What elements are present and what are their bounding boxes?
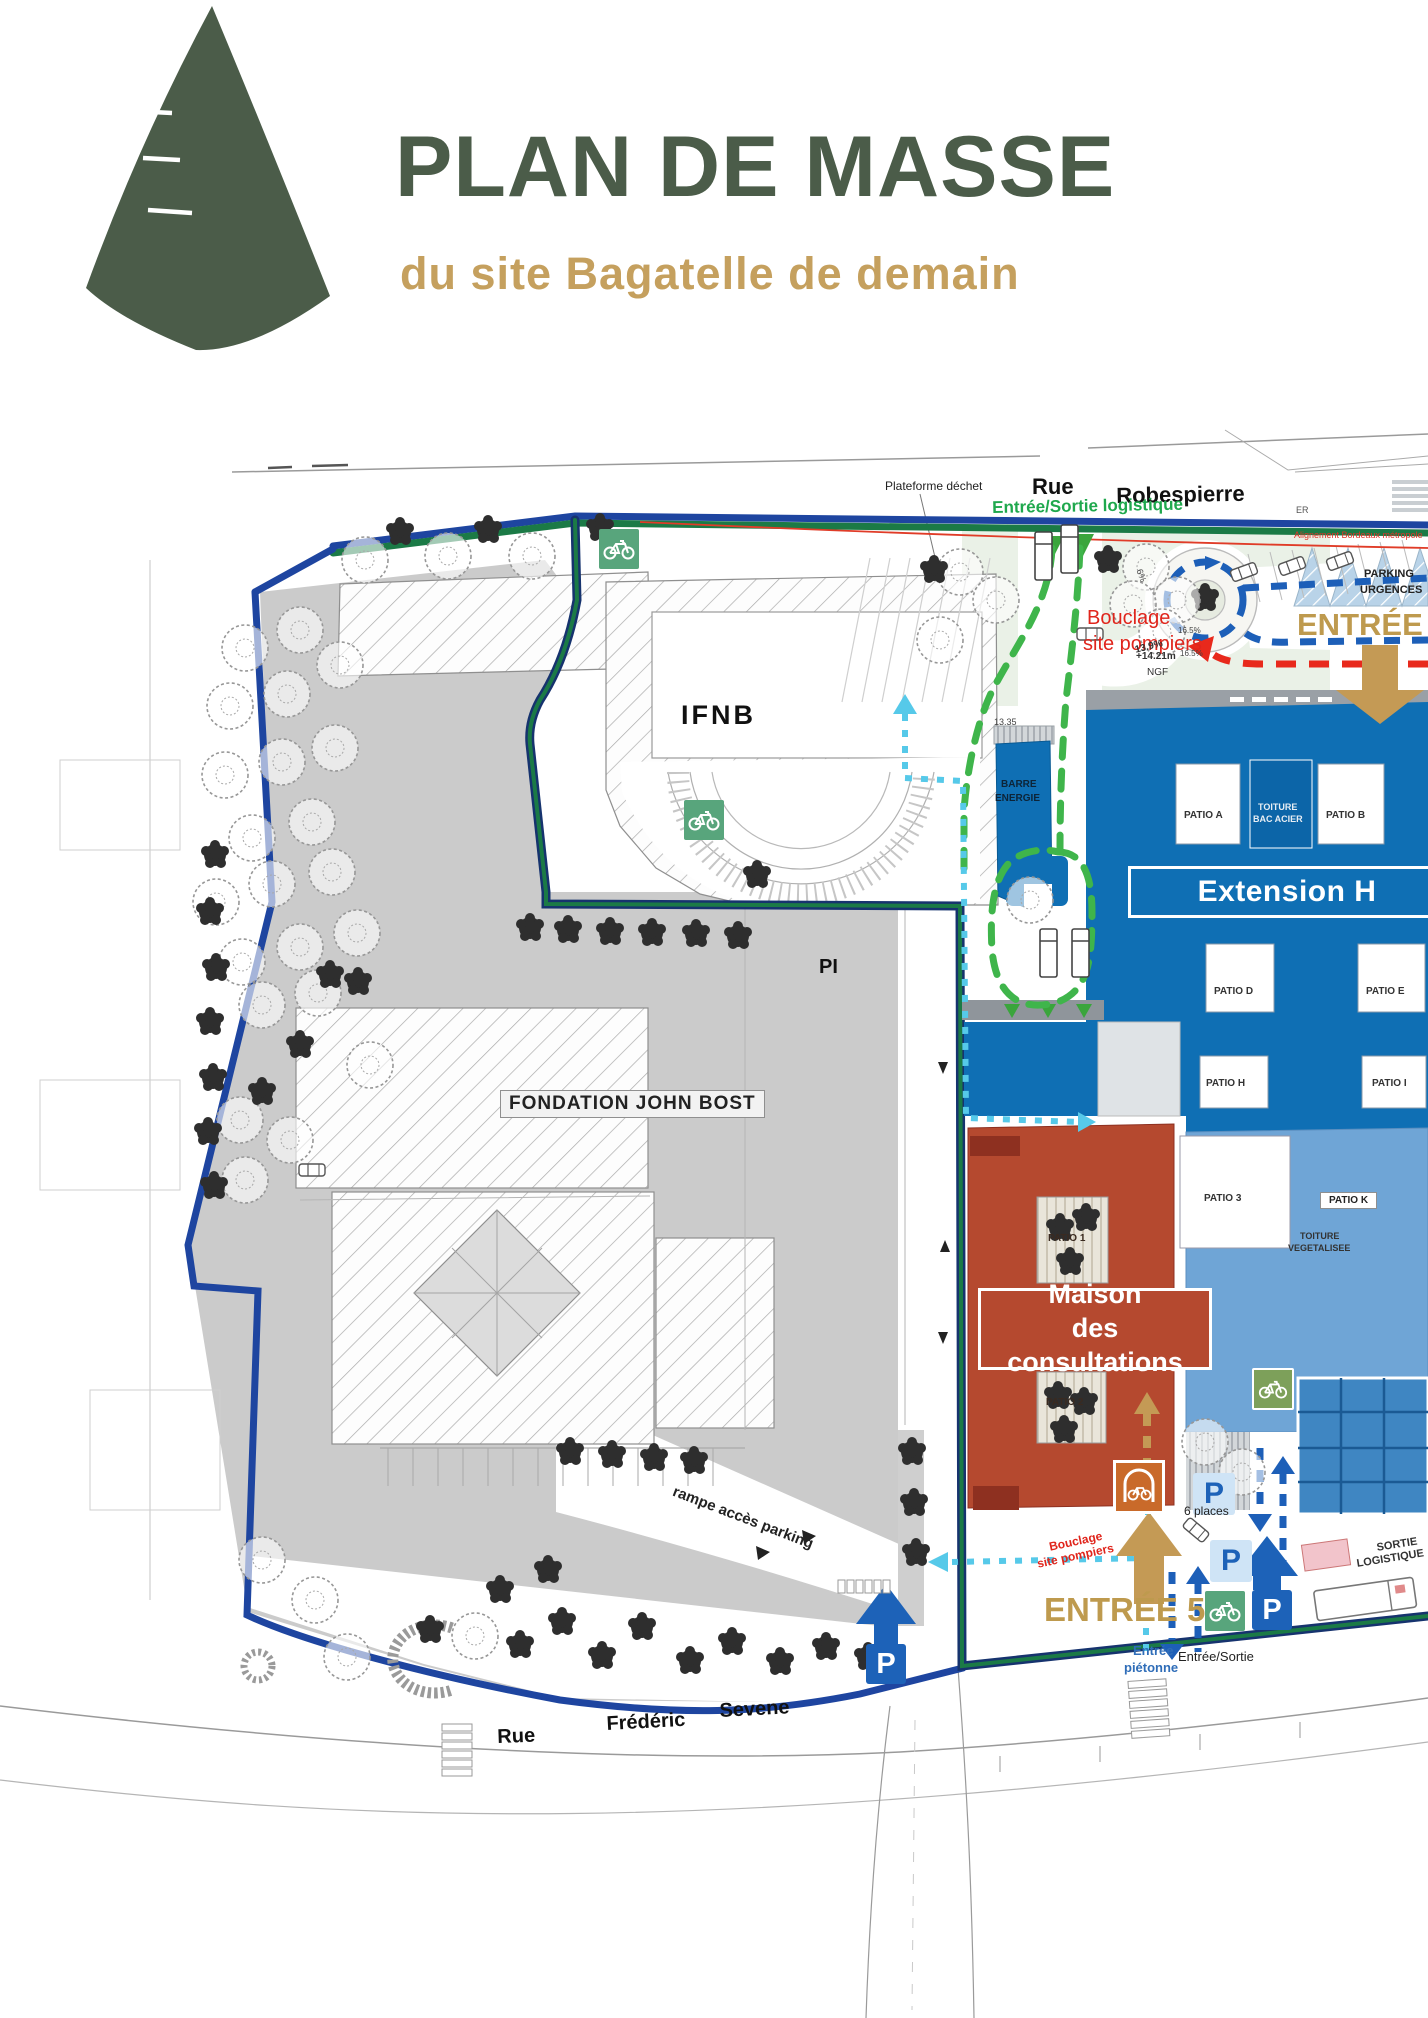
extension-hopital-callout: Extension H [1128,866,1428,918]
slope-165a: 16.5% [1178,627,1201,636]
tennis-roof [1298,1378,1428,1514]
patio-e-label: PATIO E [1366,987,1405,998]
top-right-building-bars [1392,480,1428,512]
bouclage-pompiers-line1: Bouclage [1087,608,1170,630]
barre-energie-line2: ENERGIE [995,794,1040,805]
patio-1-label: PATIO 1 [1048,1234,1085,1245]
new-buildings [962,690,1428,1602]
maison-line1: Maison [1048,1278,1141,1312]
entree-5-label: ENTRÉE 5 [1044,1592,1205,1628]
bike-parking-icon-entree5 [1205,1591,1245,1631]
toiture-bac-acier-line2: BAC ACIER [1253,815,1303,825]
patio-e [1358,944,1425,1012]
pink-zone [1301,1539,1350,1571]
level-1335: 13.35 [994,718,1017,728]
street-rue-frederic-frederic: Frédéric [606,1710,686,1736]
p-letter: P [876,1648,895,1681]
ngf-elevation-line2: NGF [1147,668,1168,679]
logistics-truck-se [1314,1577,1417,1621]
slope-165b: 16.5% [1180,650,1203,659]
patio-a-label: PATIO A [1184,811,1223,822]
p-letter: P [1262,1594,1281,1627]
patio-3 [1180,1136,1290,1248]
page-title: PLAN DE MASSE [395,118,1115,217]
bike-under-arch-icon [1120,1468,1158,1506]
bike-icon [688,809,720,831]
barre-energie-line1: BARRE [1001,780,1037,791]
parking-icon-dark-east: P [1252,1590,1292,1630]
bike-parking-icon-ifnb [684,800,724,840]
six-places-label: 6 places [1184,1505,1229,1518]
entree-sortie-logistique-label: Entrée/Sortie logistique [992,496,1183,518]
street-rue-frederic-rue: Rue [497,1726,536,1749]
entree-1-label: ENTRÉE [1297,608,1423,641]
street-rue-frederic-sevene: Sevene [719,1697,790,1722]
bike-parking-icon-north [599,529,639,569]
bagatelle-logo-icon [0,0,360,356]
patio-k-label: PATIO K [1320,1192,1377,1209]
ifnb-label: IFNB [681,701,756,730]
south-hospital-block [964,1022,1096,1116]
toiture-vegetalisee-line2: VEGETALISEE [1288,1244,1350,1254]
extension-hopital-label: Extension H [1198,875,1377,909]
toiture-vegetalisee-line1: TOITURE [1300,1232,1339,1242]
er-label: ER [1296,506,1309,516]
parking-icon-dark-west: P [866,1644,906,1684]
maison-consultations-callout: Maison des consultations [978,1288,1212,1370]
plateforme-dechet-label: Plateforme déchet [885,480,982,493]
patio-d-label: PATIO D [1214,987,1253,998]
patio-2-label: PATIO 2 [1046,1398,1083,1409]
parking-urgences-line1: PARKING [1364,569,1414,581]
parking-urgences-line2: URGENCES [1360,585,1422,597]
page-subtitle: du site Bagatelle de demain [400,248,1020,300]
bike-parking-icon-east [1252,1368,1294,1410]
patio-d [1206,944,1274,1012]
p-letter: P [1221,1544,1241,1578]
patio-b-label: PATIO B [1326,811,1365,822]
bike-icon [603,538,635,560]
entree-pietonne-line2: piétonne [1124,1661,1178,1675]
fondation-john-bost-label: FONDATION JOHN BOST [500,1090,765,1118]
entree-sortie-label: Entrée/Sortie [1178,1650,1254,1664]
bike-icon [1258,1379,1288,1399]
parking-icon-light-2: P [1210,1540,1252,1582]
patio-h-label: PATIO H [1206,1079,1245,1090]
patio-a [1176,764,1240,844]
header: PLAN DE MASSE du site Bagatelle de demai… [0,0,1428,350]
patio-3-label: PATIO 3 [1204,1194,1241,1205]
covered-bike-parking-icon [1113,1460,1165,1514]
patio-i-label: PATIO I [1372,1079,1407,1090]
toiture-bac-acier-line1: TOITURE [1258,803,1297,813]
plan-de-masse-poster: { "header": { "title": "PLAN DE MASSE", … [0,0,1428,2018]
entree-pietonne-line1: Entrée [1133,1644,1173,1658]
street-rue-robespierre-rue: Rue [1032,475,1074,499]
patio-b [1318,764,1384,844]
pi-label: PI [819,957,838,979]
maison-line2: des consultations [981,1312,1209,1380]
alignement-label: Alignement Bordeaux métropole [1294,531,1423,541]
bike-icon [1209,1600,1241,1622]
